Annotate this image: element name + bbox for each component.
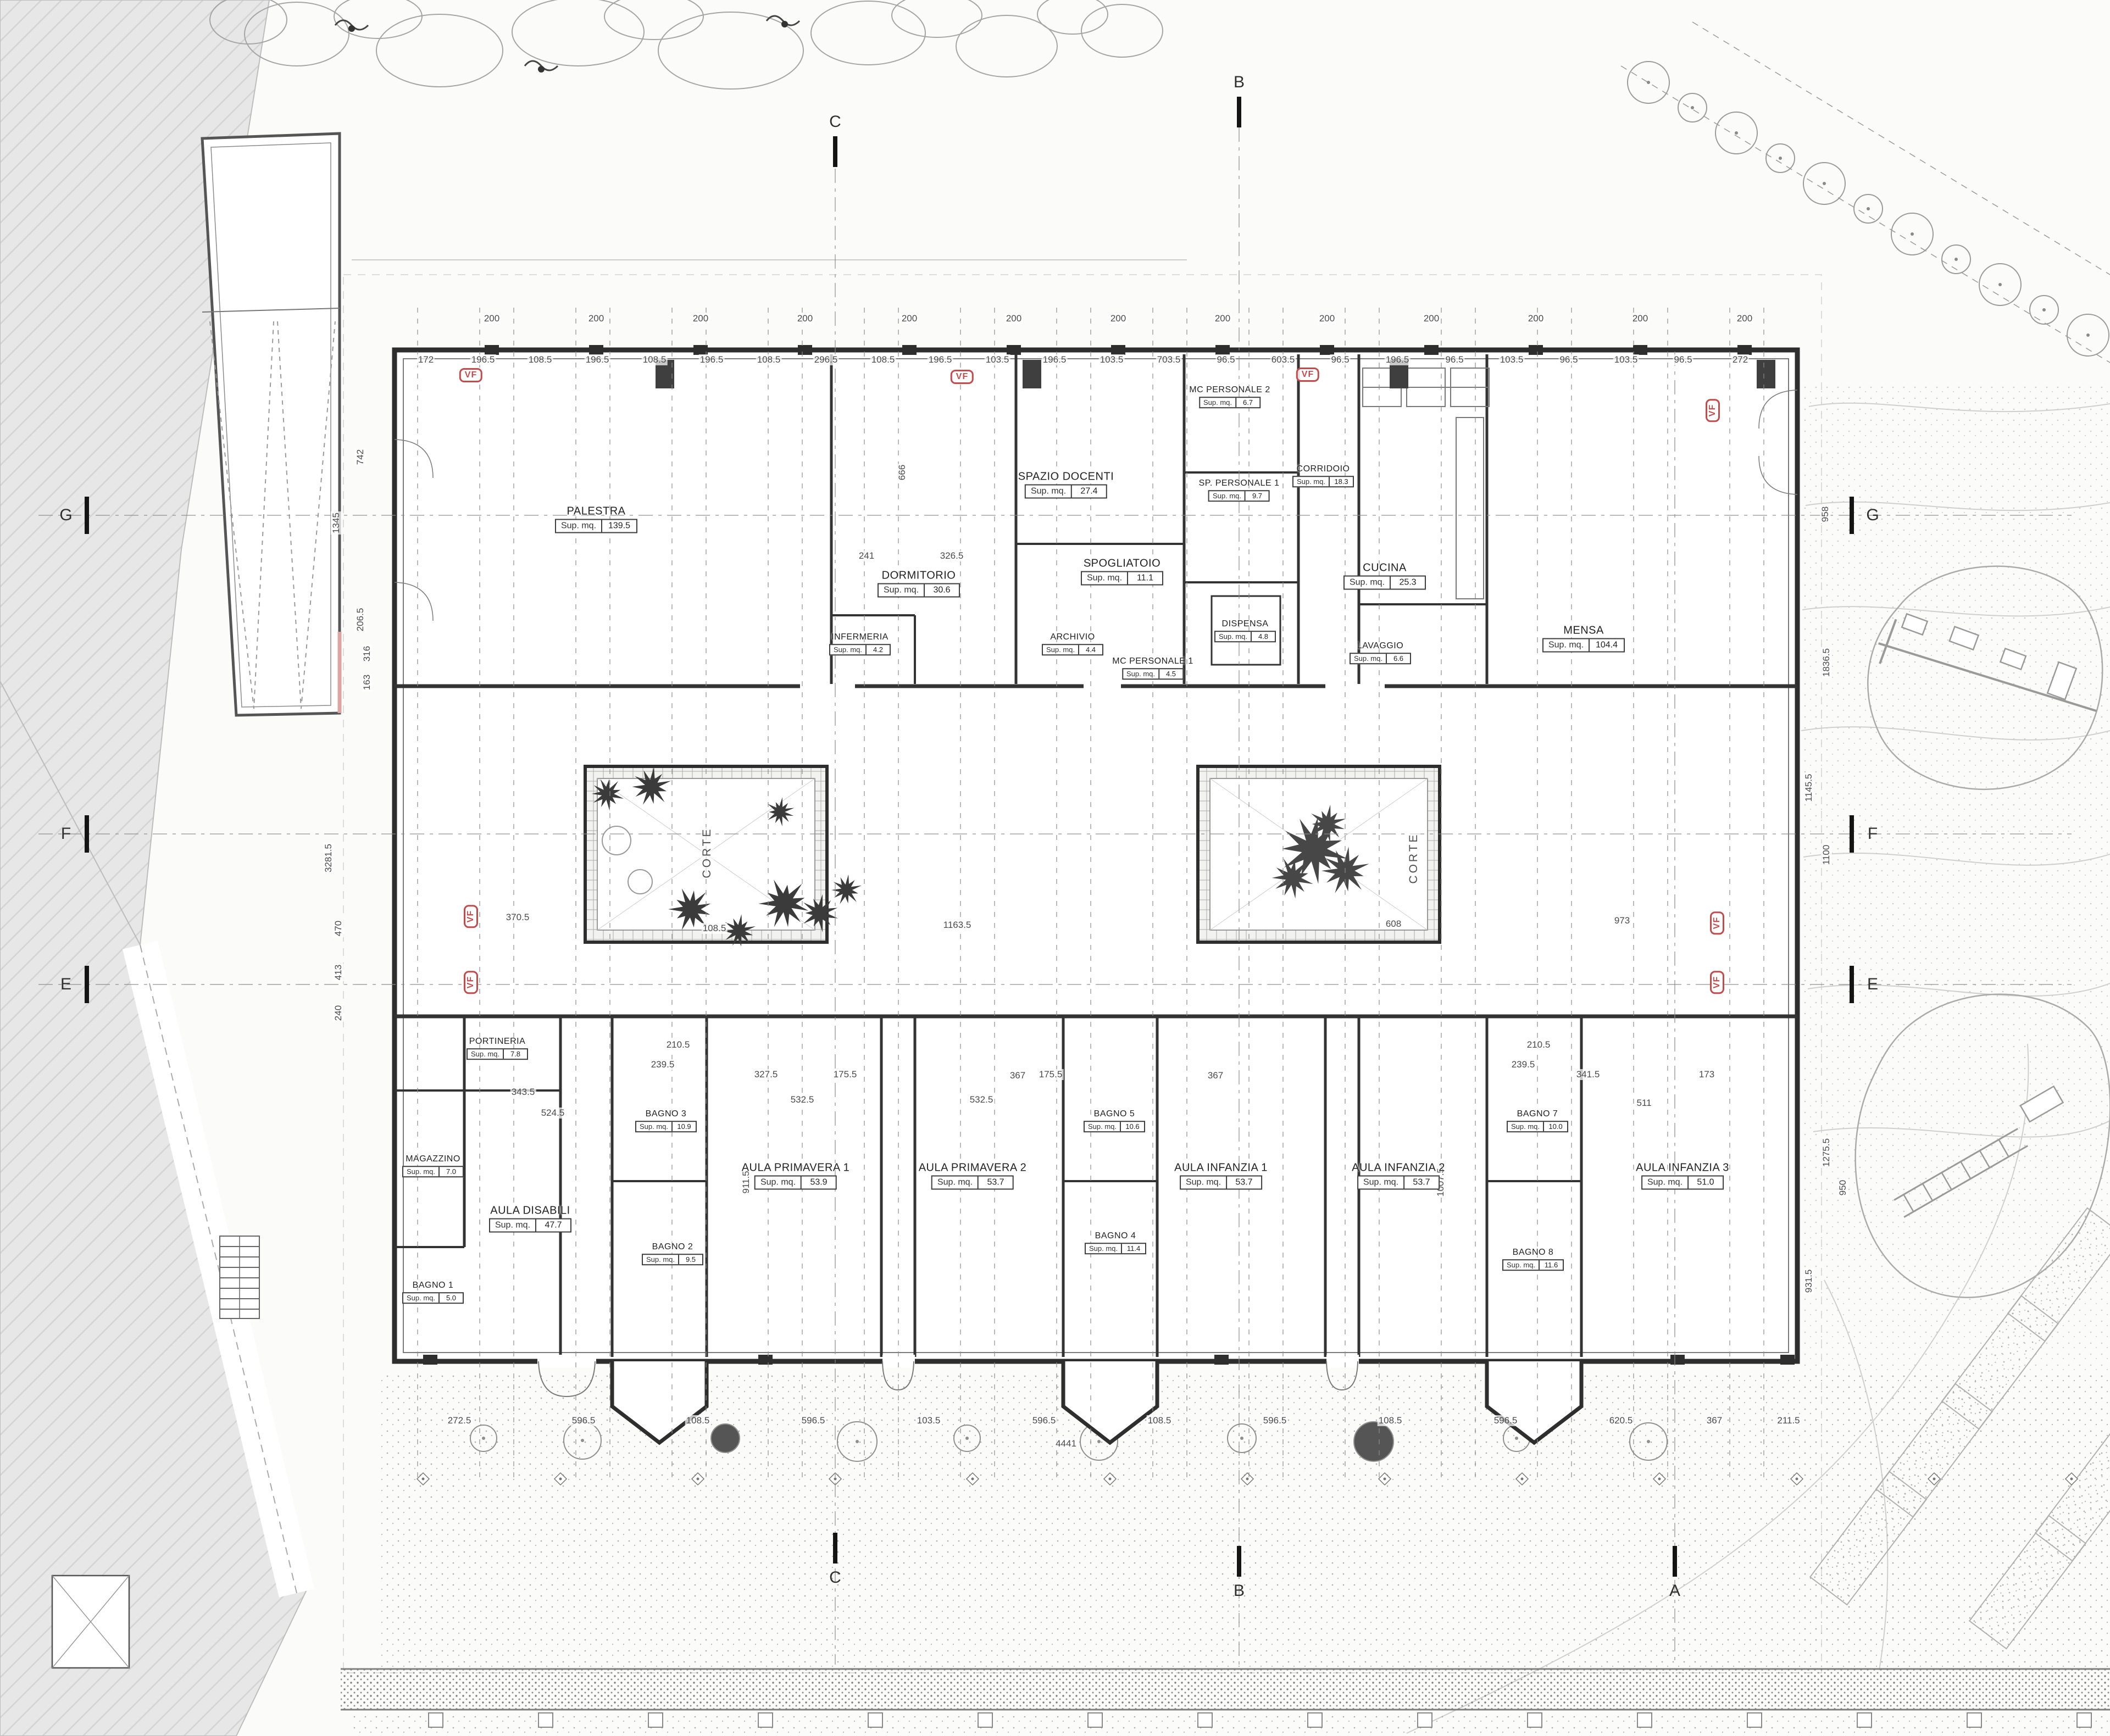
- room-label-archivio: ARCHIVIOSup. mq.4.4: [1042, 632, 1103, 655]
- dimension-text: 173: [1698, 1069, 1715, 1080]
- room-label-palestra: PALESTRASup. mq.139.5: [555, 505, 637, 533]
- area-caption: Sup. mq.: [403, 1167, 440, 1176]
- area-value: 25.3: [1391, 577, 1425, 589]
- dimension-text: 596.5: [1031, 1415, 1057, 1426]
- fire-extinguisher-marker: VF: [1296, 368, 1319, 382]
- area-value: 18.3: [1330, 477, 1353, 486]
- grid-letter-tick: [1237, 1546, 1241, 1577]
- area-box: Sup. mq.11.4: [1085, 1243, 1146, 1254]
- dimension-text: 172: [417, 354, 435, 365]
- courtyard-label: CORTE: [701, 827, 714, 878]
- area-box: Sup. mq.53.7: [1180, 1176, 1262, 1190]
- area-box: Sup. mq.53.7: [931, 1176, 1014, 1190]
- fire-extinguisher-marker: VF: [1706, 399, 1720, 422]
- dimension-text: 596.5: [801, 1415, 826, 1426]
- area-value: 53.7: [1404, 1177, 1439, 1189]
- dimension-text: 272.5: [447, 1415, 473, 1426]
- room-label-dormitorio: DORMITORIOSup. mq.30.6: [878, 570, 960, 598]
- dimension-text: 196.5: [699, 354, 725, 365]
- room-name: DISPENSA: [1214, 619, 1276, 629]
- room-label-corridoio: CORRIDOIOSup. mq.18.3: [1292, 464, 1354, 487]
- dimension-text: 742: [355, 448, 366, 466]
- area-value: 6.6: [1387, 654, 1410, 663]
- area-caption: Sup. mq.: [1082, 572, 1128, 585]
- dimension-text: 210.5: [1526, 1039, 1552, 1050]
- grid-letter-tick: [1673, 1546, 1677, 1577]
- dimension-text: 196.5: [1385, 354, 1411, 365]
- area-caption: Sup. mq.: [556, 520, 602, 532]
- room-label-mc-personale-1: MC PERSONALE 1Sup. mq.4.5: [1112, 656, 1193, 680]
- area-caption: Sup. mq.: [1293, 477, 1330, 486]
- dimension-text: 343.5: [510, 1087, 536, 1098]
- area-caption: Sup. mq.: [1123, 669, 1159, 678]
- room-label-aula-primavera-2: AULA PRIMAVERA 2Sup. mq.53.7: [919, 1162, 1027, 1190]
- dimension-text: 958: [1820, 505, 1831, 523]
- dimension-module: 200: [1423, 313, 1440, 324]
- fire-extinguisher-marker: VF: [464, 905, 478, 928]
- dimension-text: 196.5: [470, 354, 496, 365]
- dimension-text: 532.5: [969, 1094, 995, 1105]
- room-name: MC PERSONALE 2: [1189, 385, 1270, 395]
- area-box: Sup. mq.7.8: [467, 1048, 528, 1060]
- area-caption: Sup. mq.: [1085, 1122, 1121, 1131]
- grid-letter-e: E: [1867, 975, 1878, 994]
- area-value: 4.8: [1252, 632, 1275, 641]
- area-value: 47.7: [536, 1220, 570, 1232]
- dimension-text: 1836.5: [1821, 647, 1832, 678]
- dimension-text: 96.5: [1558, 354, 1579, 365]
- area-caption: Sup. mq.: [636, 1122, 673, 1131]
- dimension-text: 603.5: [1270, 354, 1296, 365]
- dimension-text: 196.5: [585, 354, 610, 365]
- dimension-text: 596.5: [1493, 1415, 1519, 1426]
- room-name: INFERMERIA: [829, 632, 891, 642]
- dimension-text: 1145.5: [1803, 773, 1814, 803]
- room-label-portineria: PORTINERIASup. mq.7.8: [467, 1037, 528, 1060]
- fire-extinguisher-marker: VF: [459, 368, 482, 382]
- area-caption: Sup. mq.: [1642, 1177, 1689, 1189]
- room-name: AULA INFANZIA 1: [1174, 1162, 1268, 1174]
- room-name: MAGAZZINO: [402, 1154, 464, 1164]
- dimension-text: 108.5: [527, 354, 553, 365]
- area-box: Sup. mq.27.4: [1025, 485, 1107, 499]
- room-label-aula-infanzia-3: AULA INFANZIA 3Sup. mq.51.0: [1636, 1162, 1729, 1190]
- grid-letter-f: F: [1868, 825, 1878, 843]
- fire-extinguisher-marker: VF: [951, 370, 974, 384]
- area-value: 5.0: [440, 1293, 463, 1303]
- area-box: Sup. mq.104.4: [1542, 638, 1625, 653]
- area-box: Sup. mq.25.3: [1343, 576, 1426, 590]
- dimension-text: 666: [897, 464, 908, 481]
- area-box: Sup. mq.51.0: [1641, 1176, 1724, 1190]
- area-box: Sup. mq.30.6: [878, 583, 960, 598]
- room-label-aula-primavera-1: AULA PRIMAVERA 1Sup. mq.53.9: [742, 1162, 850, 1190]
- dimension-module: 200: [901, 313, 918, 324]
- dimension-text: 103.5: [1499, 354, 1525, 365]
- dimension-text: 108.5: [756, 354, 782, 365]
- dimension-text: 511: [1635, 1098, 1652, 1109]
- room-name: SPOGLIATOIO: [1081, 558, 1163, 570]
- fire-extinguisher-marker: VF: [1710, 911, 1724, 934]
- area-caption: Sup. mq.: [1543, 639, 1590, 652]
- dimension-text: 367: [1009, 1070, 1026, 1081]
- room-label-mc-personale-2: MC PERSONALE 2Sup. mq.6.7: [1189, 385, 1270, 408]
- dimension-text: 524.5: [540, 1108, 566, 1119]
- room-label-aula-infanzia-1: AULA INFANZIA 1Sup. mq.53.7: [1174, 1162, 1268, 1190]
- grid-letter-tick: [85, 966, 89, 1003]
- dimension-text: 239.5: [650, 1059, 676, 1070]
- room-name: MC PERSONALE 1: [1112, 656, 1193, 666]
- dimension-text: 175.5: [1038, 1069, 1064, 1080]
- grid-letter-c: C: [829, 1568, 841, 1587]
- grid-letter-tick: [833, 136, 837, 167]
- room-name: BAGNO 5: [1084, 1109, 1145, 1119]
- area-caption: Sup. mq.: [1086, 1244, 1122, 1253]
- room-label-dispensa: DISPENSASup. mq.4.8: [1214, 619, 1276, 642]
- area-caption: Sup. mq.: [1503, 1260, 1540, 1270]
- dimension-text: 608: [1385, 919, 1402, 930]
- area-value: 7.0: [440, 1167, 463, 1176]
- grid-letter-a: A: [1669, 1582, 1680, 1600]
- room-label-bagno-5: BAGNO 5Sup. mq.10.6: [1084, 1109, 1145, 1132]
- area-value: 4.4: [1079, 645, 1102, 654]
- dimension-text: 108.5: [642, 354, 668, 365]
- area-box: Sup. mq.4.5: [1122, 668, 1184, 680]
- dimension-text: 931.5: [1803, 1268, 1814, 1294]
- dimension-text: 272: [1731, 354, 1749, 365]
- dimension-text: 108.5: [685, 1415, 711, 1426]
- room-label-sp-personale-1: SP. PERSONALE 1Sup. mq.9.7: [1199, 478, 1280, 502]
- area-box: Sup. mq.10.9: [635, 1121, 697, 1132]
- room-name: PALESTRA: [555, 505, 637, 518]
- courtyard-label: CORTE: [1407, 832, 1420, 883]
- area-box: Sup. mq.9.5: [642, 1254, 703, 1265]
- room-label-aula-disabili: AULA DISABILISup. mq.47.7: [489, 1205, 571, 1233]
- dimension-text: 108.5: [870, 354, 896, 365]
- room-name: CORRIDOIO: [1292, 464, 1354, 474]
- room-name: PORTINERIA: [467, 1037, 528, 1047]
- dimension-text: 241: [858, 550, 875, 561]
- grid-letter-tick: [1850, 966, 1854, 1003]
- dimension-module: 200: [483, 313, 501, 324]
- room-name: BAGNO 3: [635, 1109, 697, 1119]
- area-caption: Sup. mq.: [1358, 1177, 1404, 1189]
- dimension-text: 103.5: [1099, 354, 1125, 365]
- dimension-text: 239.5: [1511, 1059, 1536, 1070]
- room-label-cucina: CUCINASup. mq.25.3: [1343, 562, 1426, 590]
- area-caption: Sup. mq.: [830, 645, 867, 654]
- grid-letter-tick: [1850, 497, 1854, 534]
- dimension-module: 200: [1109, 313, 1127, 324]
- area-box: Sup. mq.9.7: [1208, 490, 1270, 502]
- dimension-text: 240: [333, 1004, 344, 1022]
- area-caption: Sup. mq.: [1345, 577, 1391, 589]
- area-caption: Sup. mq.: [490, 1220, 536, 1232]
- room-label-aula-infanzia-2: AULA INFANZIA 2Sup. mq.53.7: [1352, 1162, 1445, 1190]
- dimension-text: 341.5: [1575, 1069, 1601, 1080]
- room-label-bagno-4: BAGNO 4Sup. mq.11.4: [1085, 1231, 1146, 1254]
- dimension-text: 326.5: [939, 550, 965, 561]
- area-value: 10.0: [1544, 1122, 1567, 1131]
- area-caption: Sup. mq.: [1508, 1122, 1544, 1131]
- area-caption: Sup. mq.: [403, 1293, 440, 1303]
- dimension-module: 200: [692, 313, 709, 324]
- room-name: BAGNO 4: [1085, 1231, 1146, 1241]
- grid-letter-tick: [833, 1533, 837, 1563]
- area-caption: Sup. mq.: [643, 1255, 679, 1264]
- dimension-text: 596.5: [1262, 1415, 1288, 1426]
- fire-extinguisher-marker: VF: [1710, 971, 1724, 994]
- room-label-infermeria: INFERMERIASup. mq.4.2: [829, 632, 891, 655]
- room-name: AULA PRIMAVERA 1: [742, 1162, 850, 1174]
- dimension-text: 1100: [1821, 844, 1832, 866]
- dimension-text: 163: [362, 674, 373, 691]
- room-label-magazzino: MAGAZZINOSup. mq.7.0: [402, 1154, 464, 1177]
- dimension-text: 703.5: [1156, 354, 1182, 365]
- room-name: BAGNO 1: [402, 1281, 464, 1290]
- room-name: BAGNO 8: [1502, 1248, 1564, 1258]
- dimension-text: 103.5: [1613, 354, 1639, 365]
- room-name: DORMITORIO: [878, 570, 960, 582]
- dimension-text: 470: [333, 920, 344, 937]
- room-name: AULA INFANZIA 3: [1636, 1162, 1729, 1174]
- dimension-text: 316: [362, 645, 373, 663]
- dimension-module: 200: [1005, 313, 1023, 324]
- dimension-text: 413: [333, 964, 344, 981]
- room-label-bagno-1: BAGNO 1Sup. mq.5.0: [402, 1281, 464, 1304]
- dimension-module: 200: [1318, 313, 1336, 324]
- dimension-module: 200: [1736, 313, 1753, 324]
- area-box: Sup. mq.4.4: [1042, 644, 1103, 655]
- grid-letter-b: B: [1234, 1582, 1245, 1600]
- dimension-text: 196.5: [928, 354, 953, 365]
- grid-letter-f: F: [61, 825, 71, 843]
- grid-letter-tick: [85, 815, 89, 853]
- area-box: Sup. mq.53.9: [754, 1176, 837, 1190]
- dimension-text: 96.5: [1215, 354, 1236, 365]
- annotation-layer: PALESTRASup. mq.139.5DORMITORIOSup. mq.3…: [0, 0, 2110, 1736]
- room-label-bagno-7: BAGNO 7Sup. mq.10.0: [1507, 1109, 1568, 1132]
- area-caption: Sup. mq.: [1043, 645, 1079, 654]
- area-value: 139.5: [602, 520, 636, 532]
- area-box: Sup. mq.11.1: [1081, 571, 1163, 586]
- area-box: Sup. mq.6.6: [1350, 653, 1411, 664]
- dimension-text: 367: [1706, 1415, 1723, 1426]
- dimension-text: 108.5: [1378, 1415, 1403, 1426]
- room-name: SP. PERSONALE 1: [1199, 478, 1280, 488]
- dimension-text: 596.5: [571, 1415, 597, 1426]
- dimension-text: 1345: [331, 511, 342, 535]
- dimension-text: 103.5: [916, 1415, 942, 1426]
- area-value: 51.0: [1689, 1177, 1723, 1189]
- dimension-text: 296.5: [813, 354, 839, 365]
- area-value: 9.5: [679, 1255, 702, 1264]
- area-caption: Sup. mq.: [1215, 632, 1252, 641]
- dimension-text: 327.5: [753, 1069, 779, 1080]
- dimension-text: 1275.5: [1821, 1137, 1832, 1168]
- room-label-bagno-2: BAGNO 2Sup. mq.9.5: [642, 1242, 703, 1265]
- room-label-lavaggio: LAVAGGIOSup. mq.6.6: [1350, 641, 1411, 664]
- area-box: Sup. mq.139.5: [555, 519, 637, 533]
- area-value: 7.8: [504, 1049, 527, 1059]
- room-label-spazio-docenti: SPAZIO DOCENTISup. mq.27.4: [1018, 471, 1114, 499]
- area-box: Sup. mq.4.8: [1214, 631, 1276, 642]
- area-caption: Sup. mq.: [879, 585, 925, 597]
- dimension-module: 200: [1631, 313, 1649, 324]
- room-label-spogliatoio: SPOGLIATOIOSup. mq.11.1: [1081, 558, 1163, 586]
- room-name: ARCHIVIO: [1042, 632, 1103, 642]
- area-value: 53.7: [1227, 1177, 1261, 1189]
- area-box: Sup. mq.7.0: [402, 1166, 464, 1177]
- area-box: Sup. mq.47.7: [489, 1218, 571, 1233]
- room-name: LAVAGGIO: [1350, 641, 1411, 651]
- grid-letter-g: G: [59, 506, 72, 525]
- area-value: 9.7: [1246, 491, 1269, 500]
- room-name: AULA PRIMAVERA 2: [919, 1162, 1027, 1174]
- dimension-text: 96.5: [1330, 354, 1350, 365]
- area-value: 53.9: [802, 1177, 836, 1189]
- dimension-text: 211.5: [1776, 1415, 1801, 1426]
- dimension-module: 200: [1214, 313, 1231, 324]
- area-value: 4.5: [1159, 669, 1182, 678]
- dimension-text: 367: [1207, 1070, 1224, 1081]
- grid-letter-tick: [1237, 97, 1241, 127]
- dimension-text: 210.5: [665, 1039, 691, 1050]
- room-label-bagno-3: BAGNO 3Sup. mq.10.9: [635, 1109, 697, 1132]
- grid-letter-tick: [85, 497, 89, 534]
- area-value: 4.2: [867, 645, 890, 654]
- area-caption: Sup. mq.: [468, 1049, 504, 1059]
- dimension-text: 532.5: [790, 1094, 815, 1105]
- area-value: 11.4: [1122, 1244, 1145, 1253]
- dimension-text: 973: [1613, 915, 1631, 926]
- room-name: AULA INFANZIA 2: [1352, 1162, 1445, 1174]
- area-caption: Sup. mq.: [1209, 491, 1246, 500]
- room-name: BAGNO 2: [642, 1242, 703, 1252]
- dimension-text: 370.5: [505, 912, 531, 923]
- area-caption: Sup. mq.: [1200, 398, 1236, 407]
- dimension-text: 175.5: [832, 1069, 858, 1080]
- area-box: Sup. mq.6.7: [1199, 397, 1261, 408]
- room-name: BAGNO 7: [1507, 1109, 1568, 1119]
- area-value: 6.7: [1236, 398, 1259, 407]
- dimension-text: 108.5: [1147, 1415, 1173, 1426]
- area-caption: Sup. mq.: [1181, 1177, 1227, 1189]
- area-box: Sup. mq.10.6: [1084, 1121, 1145, 1132]
- dimension-module: 200: [587, 313, 605, 324]
- dimension-module: 200: [796, 313, 814, 324]
- area-value: 10.6: [1121, 1122, 1144, 1131]
- dimension-module: 200: [1527, 313, 1545, 324]
- area-box: Sup. mq.11.6: [1502, 1259, 1564, 1271]
- room-name: AULA DISABILI: [489, 1205, 571, 1217]
- dimension-text: 206.5: [355, 607, 366, 633]
- dimension-text: 3281.5: [323, 843, 334, 873]
- area-value: 11.6: [1540, 1260, 1563, 1270]
- dimension-total: 4441: [1054, 1438, 1078, 1449]
- area-box: Sup. mq.10.0: [1507, 1121, 1568, 1132]
- dimension-text: 108.5: [702, 923, 728, 934]
- area-value: 10.9: [673, 1122, 696, 1131]
- grid-letter-b: B: [1234, 73, 1245, 92]
- area-box: Sup. mq.53.7: [1357, 1176, 1440, 1190]
- fire-extinguisher-marker: VF: [464, 971, 478, 994]
- dimension-text: 1163.5: [942, 920, 973, 931]
- room-name: CUCINA: [1343, 562, 1426, 574]
- area-caption: Sup. mq.: [1026, 486, 1072, 498]
- room-name: MENSA: [1542, 625, 1625, 637]
- room-label-bagno-8: BAGNO 8Sup. mq.11.6: [1502, 1248, 1564, 1271]
- area-value: 30.6: [925, 585, 959, 597]
- area-caption: Sup. mq.: [932, 1177, 979, 1189]
- dimension-text: 950: [1837, 1179, 1848, 1197]
- dimension-text: 96.5: [1673, 354, 1693, 365]
- area-value: 104.4: [1590, 639, 1624, 652]
- area-value: 27.4: [1072, 486, 1106, 498]
- dimension-text: 196.5: [1042, 354, 1068, 365]
- dimension-text: 103.5: [985, 354, 1010, 365]
- dimension-text: 96.5: [1444, 354, 1464, 365]
- room-name: SPAZIO DOCENTI: [1018, 471, 1114, 483]
- area-caption: Sup. mq.: [756, 1177, 802, 1189]
- area-box: Sup. mq.18.3: [1292, 476, 1354, 487]
- dimension-text: 620.5: [1608, 1415, 1634, 1426]
- grid-letter-g: G: [1866, 506, 1879, 525]
- grid-letter-e: E: [60, 975, 71, 994]
- floor-plan-page: PALESTRASup. mq.139.5DORMITORIOSup. mq.3…: [0, 0, 2110, 1736]
- area-box: Sup. mq.4.2: [829, 644, 891, 655]
- area-value: 53.7: [979, 1177, 1013, 1189]
- grid-letter-tick: [1850, 815, 1854, 853]
- area-caption: Sup. mq.: [1351, 654, 1387, 663]
- room-label-mensa: MENSASup. mq.104.4: [1542, 625, 1625, 653]
- area-box: Sup. mq.5.0: [402, 1292, 464, 1304]
- area-value: 11.1: [1128, 572, 1162, 585]
- grid-letter-c: C: [829, 113, 841, 131]
